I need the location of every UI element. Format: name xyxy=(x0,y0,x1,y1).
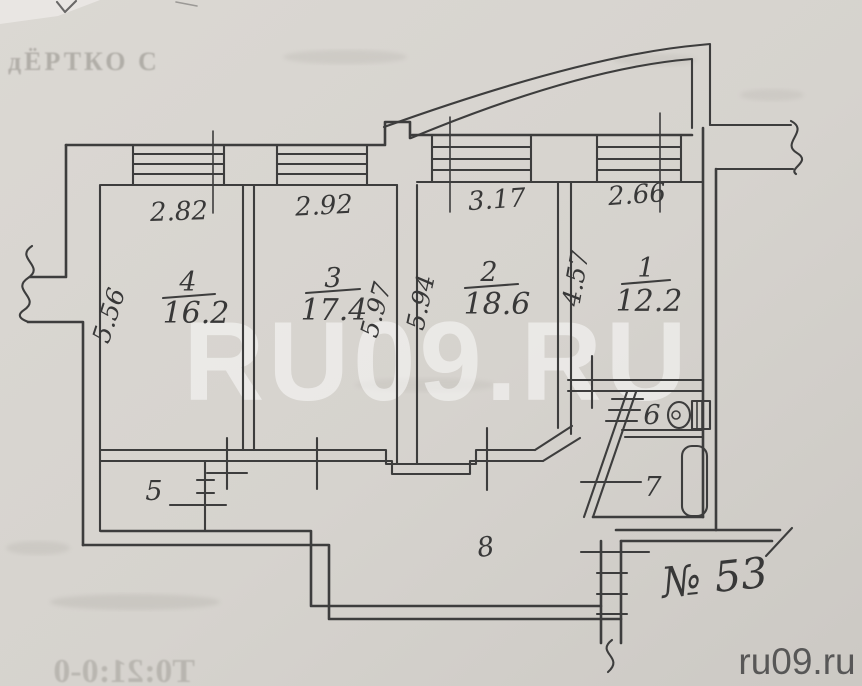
dim-room2-width: 3.17 xyxy=(467,183,527,217)
room3-area: 17.4 xyxy=(301,293,368,328)
room4-area: 16.2 xyxy=(163,296,230,331)
bleed-text-top-left: дЁРТКО С xyxy=(8,47,160,76)
room2-number: 2 xyxy=(479,257,497,288)
room1-number: 1 xyxy=(637,253,654,284)
bleed-text-bottom-left: Т0:21:0-0 xyxy=(53,653,195,686)
floorplan-svg: дЁРТКО С Т0:21:0-0 RU09.RU xyxy=(0,0,862,686)
room3-number: 3 xyxy=(324,263,341,294)
scanned-floorplan-page: дЁРТКО С Т0:21:0-0 RU09.RU xyxy=(0,0,862,686)
room7-number: 7 xyxy=(644,472,662,503)
smudge xyxy=(6,541,70,555)
smudge xyxy=(50,594,220,610)
room1-area: 12.2 xyxy=(616,284,683,319)
watermark-corner: ru09.ru xyxy=(738,641,855,682)
dim-room1-width: 2.66 xyxy=(606,178,667,212)
smudge xyxy=(283,50,407,64)
watermark-center: RU09.RU xyxy=(183,299,690,424)
room2-area: 18.6 xyxy=(464,287,531,322)
smudge xyxy=(740,89,804,101)
dim-room4-width: 2.82 xyxy=(148,196,208,228)
room5-number: 5 xyxy=(145,476,162,507)
room4-number: 4 xyxy=(178,267,196,298)
dim-room3-width: 2.92 xyxy=(293,190,353,223)
room6-number: 6 xyxy=(643,400,660,431)
